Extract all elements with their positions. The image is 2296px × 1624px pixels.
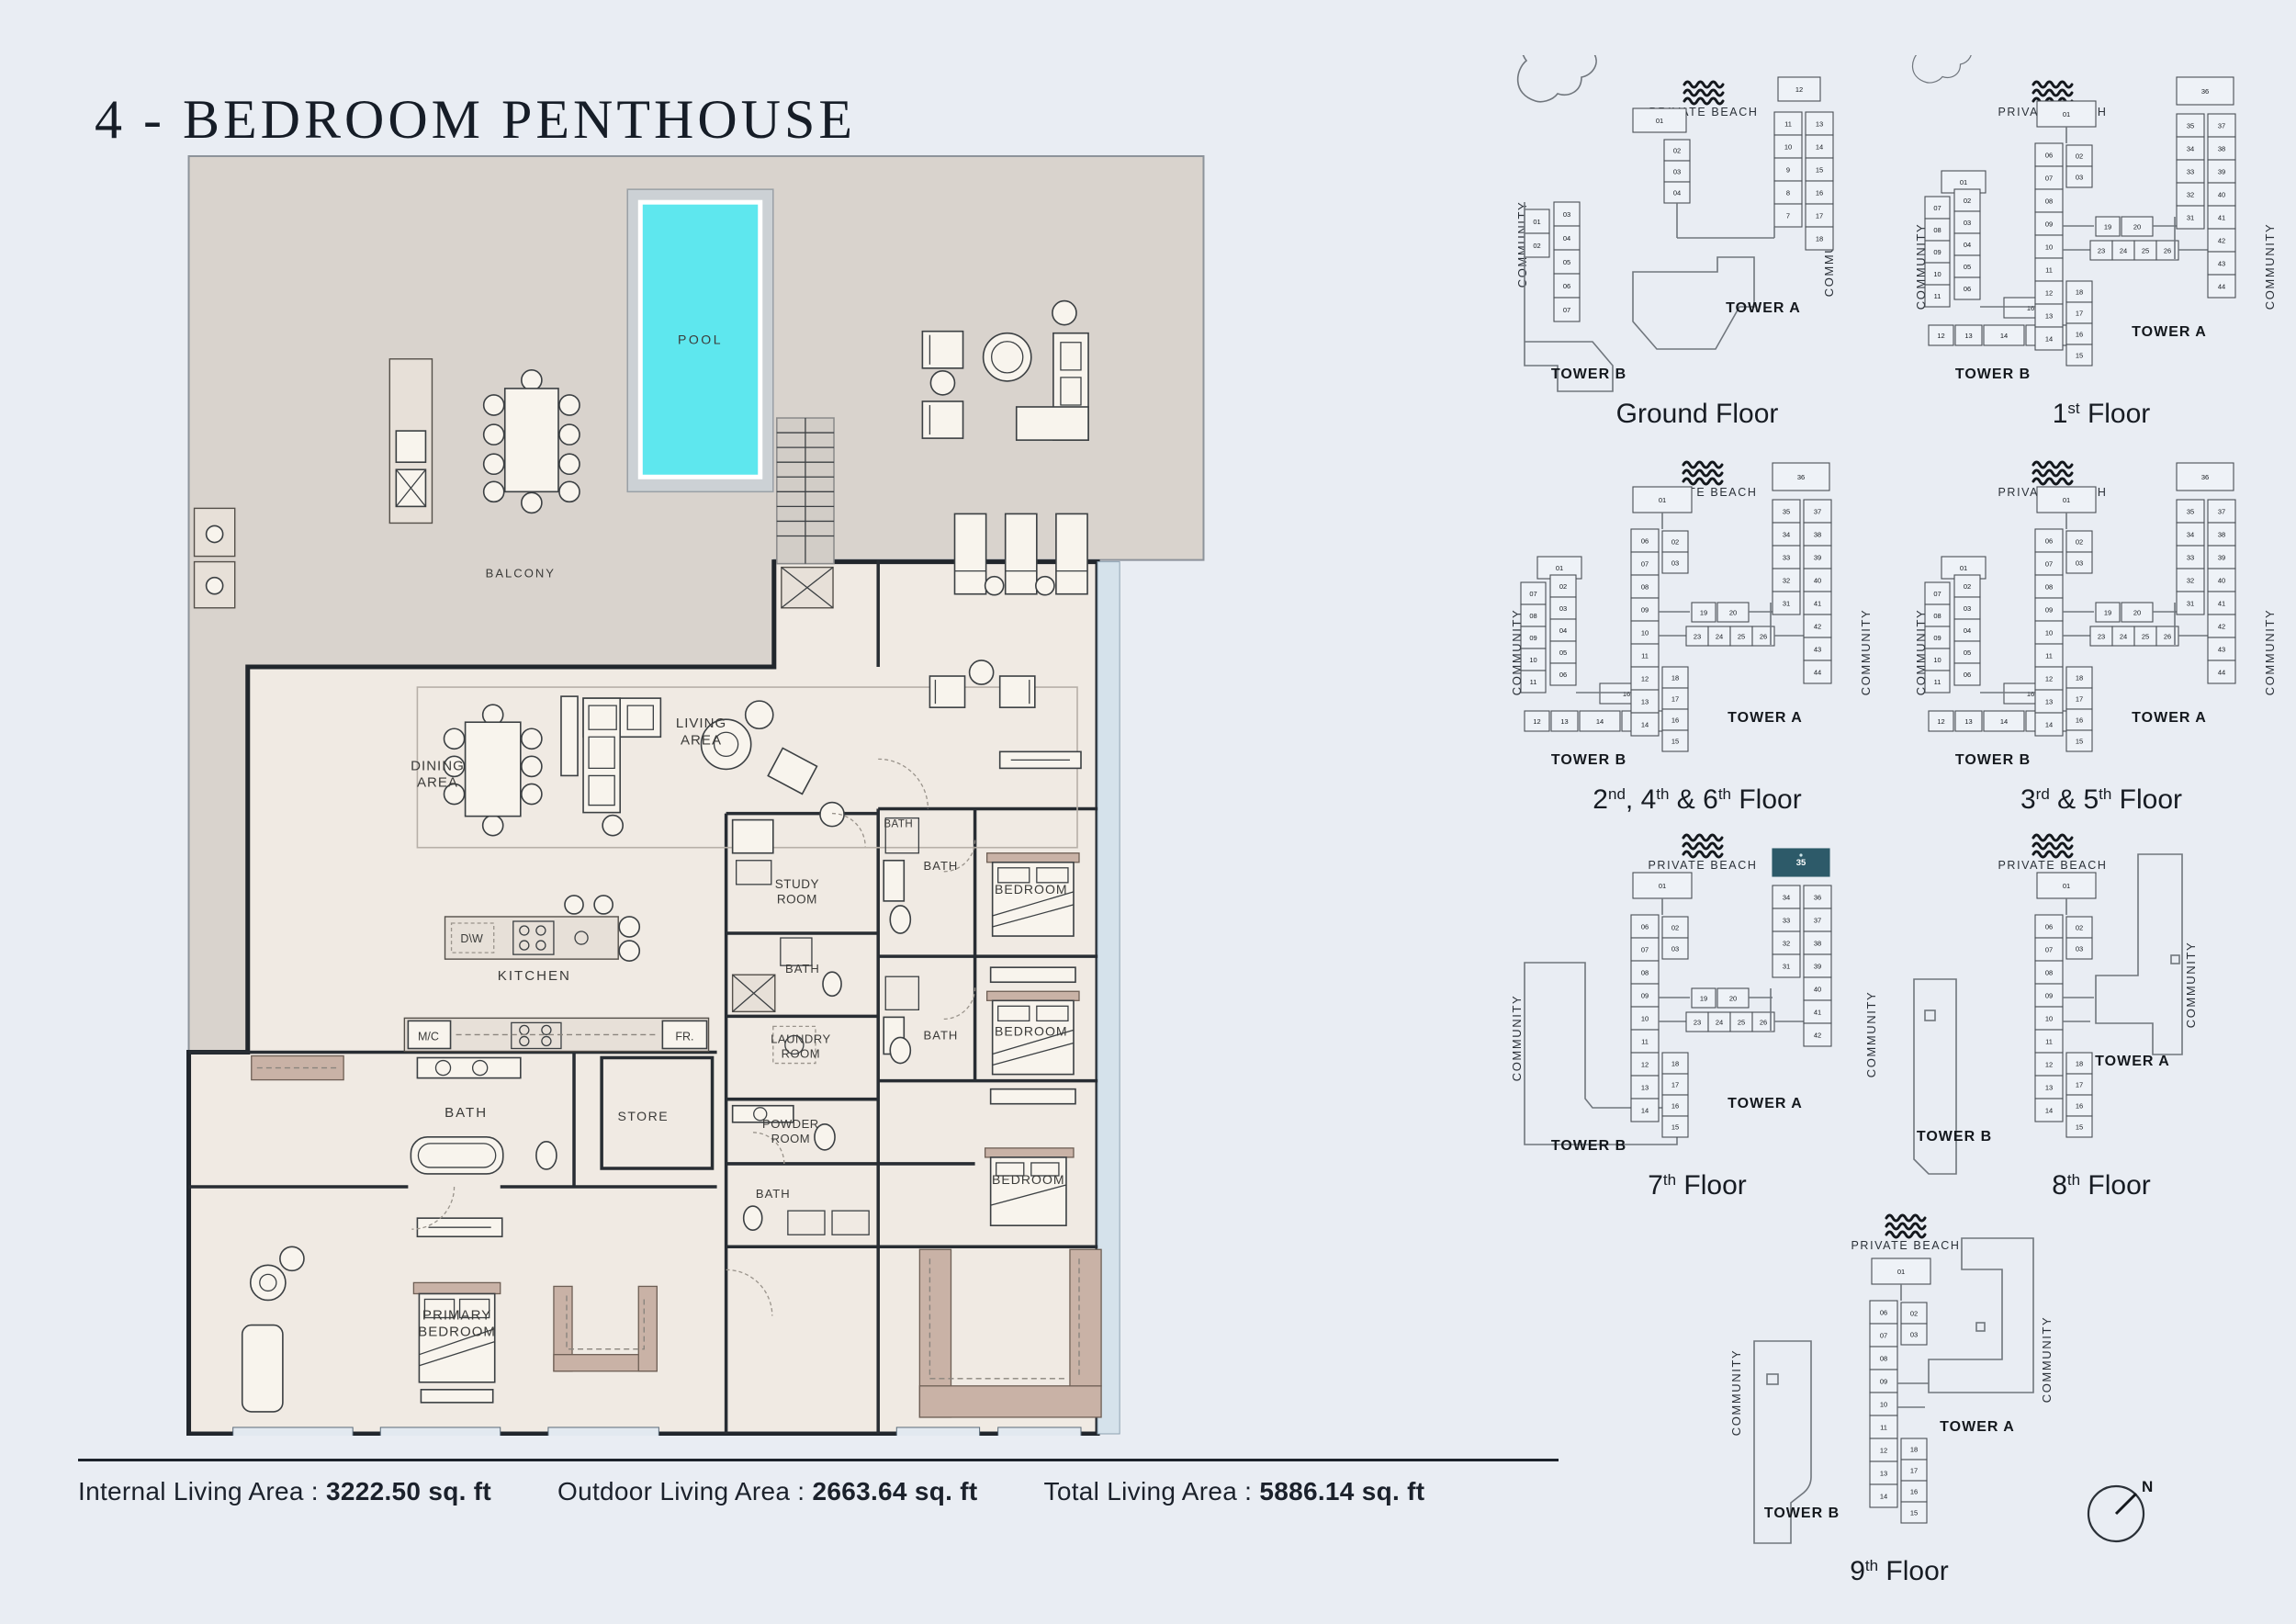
floorplan-drawing: POOLBALCONYDININGAREALIVINGAREAKITCHEND\… [186, 154, 1206, 1436]
svg-text:14: 14 [1816, 143, 1823, 152]
svg-text:10: 10 [1880, 1401, 1887, 1409]
keyplan-svg-f9: PRIVATE BEACHCOMMUNITYCOMMUNITY010607080… [1699, 1212, 2103, 1598]
svg-text:01: 01 [1659, 882, 1666, 890]
svg-text:08: 08 [1933, 226, 1941, 234]
svg-text:07: 07 [1933, 590, 1941, 598]
keyplan-1st: PRIVATE BEACHCOMMUNITYCOMMUNITY010708091… [1901, 55, 2296, 441]
svg-text:06: 06 [1559, 671, 1567, 679]
svg-text:01: 01 [1656, 117, 1663, 125]
svg-text:36: 36 [2201, 87, 2209, 96]
svg-text:25: 25 [2142, 247, 2149, 255]
svg-text:35: 35 [1796, 858, 1806, 868]
floor-caption: 2nd, 4th & 6th Floor [1593, 784, 1801, 815]
room-label-dw: D\W [460, 932, 483, 945]
room-label-store: STORE [617, 1109, 669, 1123]
svg-text:06: 06 [2045, 537, 2053, 546]
svg-text:05: 05 [1563, 258, 1570, 266]
svg-text:37: 37 [1814, 917, 1821, 925]
brochure-page: 4 - BEDROOM PENTHOUSE [0, 0, 2296, 1624]
svg-text:34: 34 [1783, 894, 1790, 902]
svg-text:38: 38 [1814, 940, 1821, 948]
svg-text:17: 17 [1671, 695, 1679, 704]
main-floorplan: POOLBALCONYDININGAREALIVINGAREAKITCHEND\… [186, 154, 1206, 1436]
svg-text:09: 09 [1880, 1378, 1887, 1386]
svg-text:02: 02 [2076, 152, 2083, 161]
keyplan-svg-first: PRIVATE BEACHCOMMUNITYCOMMUNITY010708091… [1901, 55, 2296, 441]
tower-b-label: TOWER B [1955, 367, 2031, 382]
svg-text:02: 02 [1964, 197, 1971, 205]
svg-text:07: 07 [1563, 306, 1570, 314]
svg-text:02: 02 [1671, 538, 1679, 547]
svg-text:19: 19 [2104, 223, 2111, 231]
svg-text:09: 09 [2045, 606, 2053, 615]
svg-text:16: 16 [2076, 716, 2083, 725]
room-label-bath_lower: BATH [756, 1187, 791, 1201]
keyplan-2nd-4th-6th: PRIVATE BEACHCOMMUNITYCOMMUNITY010708091… [1497, 441, 1901, 827]
svg-text:04: 04 [1964, 241, 1971, 249]
svg-text:23: 23 [2098, 633, 2105, 641]
svg-text:06: 06 [1964, 671, 1971, 679]
svg-text:03: 03 [1673, 168, 1681, 176]
svg-text:20: 20 [2133, 223, 2141, 231]
svg-text:11: 11 [1641, 1038, 1649, 1046]
svg-text:26: 26 [2164, 633, 2171, 641]
svg-text:08: 08 [2045, 583, 2053, 592]
svg-text:16: 16 [1671, 1102, 1679, 1111]
svg-text:08: 08 [2045, 197, 2053, 206]
tower-b-label: TOWER B [1917, 1129, 1992, 1145]
svg-text:06: 06 [1964, 285, 1971, 293]
svg-text:11: 11 [2045, 1038, 2053, 1046]
svg-text:13: 13 [1560, 717, 1568, 726]
community-label: COMMUNITY [2263, 223, 2277, 310]
community-label: COMMUNITY [1864, 991, 1878, 1078]
svg-text:15: 15 [2076, 1123, 2083, 1132]
svg-text:26: 26 [1760, 1019, 1767, 1027]
svg-text:08: 08 [1933, 612, 1941, 620]
keyplan-7th: PRIVATE BEACHCOMMUNITYCOMMUNITY010607080… [1497, 827, 1901, 1212]
svg-text:43: 43 [2218, 260, 2225, 268]
bbq-counter [389, 359, 432, 524]
svg-text:15: 15 [1671, 1123, 1679, 1132]
floor-caption: 8th Floor [2052, 1170, 2151, 1201]
svg-text:09: 09 [1641, 992, 1649, 1000]
svg-text:01: 01 [1556, 564, 1563, 572]
svg-text:16: 16 [1910, 1488, 1918, 1496]
svg-text:13: 13 [2045, 1084, 2053, 1092]
room-label-bath_top: BATH [884, 819, 913, 830]
svg-text:17: 17 [2076, 1081, 2083, 1089]
svg-text:07: 07 [2045, 946, 2053, 954]
svg-text:07: 07 [2045, 175, 2053, 183]
room-label-pool: POOL [678, 333, 723, 347]
svg-text:01: 01 [1659, 496, 1666, 504]
area-summary: Internal Living Area : 3222.50 sq. ftOut… [78, 1477, 1424, 1506]
tower-a-label: TOWER A [2095, 1054, 2170, 1069]
floor-caption: 3rd & 5th Floor [2020, 784, 2182, 815]
svg-text:06: 06 [1641, 537, 1649, 546]
svg-text:19: 19 [2104, 609, 2111, 617]
svg-text:12: 12 [1937, 717, 1944, 726]
svg-text:09: 09 [1933, 634, 1941, 642]
svg-text:09: 09 [1933, 248, 1941, 256]
svg-text:24: 24 [2120, 247, 2127, 255]
svg-text:33: 33 [1783, 917, 1790, 925]
svg-text:44: 44 [2218, 669, 2225, 677]
svg-text:14: 14 [1596, 717, 1604, 726]
tower-a-outline [2096, 854, 2182, 1054]
svg-text:14: 14 [2045, 335, 2053, 344]
svg-text:35: 35 [2187, 508, 2194, 516]
svg-text:10: 10 [2045, 243, 2053, 252]
svg-text:02: 02 [1671, 924, 1679, 932]
community-label: COMMUNITY [2040, 1316, 2054, 1404]
svg-text:43: 43 [2218, 646, 2225, 654]
svg-text:02: 02 [2076, 924, 2083, 932]
svg-text:23: 23 [1694, 1019, 1701, 1027]
svg-text:18: 18 [2076, 674, 2083, 682]
room-label-primary: PRIMARYBEDROOM [418, 1308, 496, 1340]
svg-text:18: 18 [1671, 674, 1679, 682]
svg-text:01: 01 [2063, 496, 2070, 504]
svg-text:44: 44 [2218, 283, 2225, 291]
keyplan-svg-f7: PRIVATE BEACHCOMMUNITYCOMMUNITY010607080… [1497, 827, 1901, 1212]
svg-text:14: 14 [1880, 1493, 1887, 1501]
svg-text:04: 04 [1964, 626, 1971, 635]
svg-text:03: 03 [1559, 604, 1567, 613]
svg-text:02: 02 [1910, 1310, 1918, 1318]
community-label: COMMUNITY [1729, 1349, 1743, 1437]
svg-text:02: 02 [1673, 147, 1681, 155]
svg-text:12: 12 [1533, 717, 1540, 726]
sun-loungers [955, 513, 1088, 594]
svg-text:20: 20 [2133, 609, 2141, 617]
svg-text:07: 07 [1641, 560, 1649, 569]
svg-text:39: 39 [2218, 168, 2225, 176]
room-label-kitchen: KITCHEN [498, 968, 571, 984]
svg-text:06: 06 [1880, 1309, 1887, 1317]
svg-text:12: 12 [1641, 675, 1649, 683]
floor-caption: 1st Floor [2053, 399, 2151, 429]
svg-text:07: 07 [1933, 204, 1941, 212]
tower-a-label: TOWER A [1728, 710, 1803, 726]
svg-text:10: 10 [1933, 270, 1941, 278]
svg-text:39: 39 [1814, 554, 1821, 562]
svg-text:14: 14 [2000, 717, 2008, 726]
svg-text:7: 7 [1786, 212, 1790, 220]
svg-text:25: 25 [1738, 1019, 1745, 1027]
svg-text:02: 02 [1964, 582, 1971, 591]
svg-text:38: 38 [2218, 531, 2225, 539]
svg-text:41: 41 [2218, 600, 2225, 608]
svg-text:01: 01 [2063, 110, 2070, 118]
private-beach-label: PRIVATE BEACH [1649, 859, 1758, 872]
room-label-dining: DININGAREA [411, 758, 465, 790]
svg-text:40: 40 [1814, 577, 1821, 585]
svg-text:09: 09 [2045, 220, 2053, 229]
svg-text:32: 32 [1783, 577, 1790, 585]
svg-text:25: 25 [2142, 633, 2149, 641]
svg-text:40: 40 [2218, 577, 2225, 585]
tower-b-label: TOWER B [1764, 1506, 1840, 1521]
svg-text:10: 10 [1933, 656, 1941, 664]
svg-text:15: 15 [1671, 738, 1679, 746]
room-label-balcony: BALCONY [486, 567, 556, 581]
svg-text:12: 12 [2045, 289, 2053, 298]
svg-text:13: 13 [1964, 717, 1972, 726]
north-compass: N [2074, 1468, 2166, 1560]
svg-text:42: 42 [1814, 1032, 1821, 1040]
svg-text:11: 11 [1530, 678, 1537, 686]
svg-text:42: 42 [1814, 623, 1821, 631]
svg-text:05: 05 [1964, 263, 1971, 271]
svg-text:42: 42 [2218, 237, 2225, 245]
svg-text:12: 12 [2045, 675, 2053, 683]
svg-text:15: 15 [1910, 1509, 1918, 1517]
svg-text:13: 13 [1641, 698, 1649, 706]
floor-caption: 9th Floor [1850, 1556, 1949, 1586]
room-label-fr: FR. [675, 1030, 693, 1043]
lagoon-outline [1518, 55, 1598, 102]
svg-text:18: 18 [1910, 1446, 1918, 1454]
svg-text:23: 23 [2098, 247, 2105, 255]
community-label: COMMUNITY [2184, 942, 2198, 1029]
svg-text:25: 25 [1738, 633, 1745, 641]
svg-text:03: 03 [1671, 559, 1679, 568]
keyplan-svg-f35: PRIVATE BEACHCOMMUNITYCOMMUNITY010708091… [1901, 441, 2296, 827]
svg-text:06: 06 [1641, 923, 1649, 931]
tower-b-label: TOWER B [1551, 367, 1626, 382]
svg-text:03: 03 [1964, 604, 1971, 613]
svg-text:23: 23 [1694, 633, 1701, 641]
svg-text:15: 15 [2076, 738, 2083, 746]
svg-text:12: 12 [1795, 85, 1803, 94]
svg-text:04: 04 [1673, 189, 1681, 197]
svg-text:34: 34 [2187, 145, 2194, 153]
svg-text:17: 17 [1910, 1467, 1918, 1475]
svg-text:11: 11 [1934, 292, 1941, 300]
floor-caption: Ground Floor [1616, 399, 1779, 429]
svg-text:14: 14 [1641, 1107, 1649, 1115]
svg-text:35: 35 [1783, 508, 1790, 516]
svg-text:20: 20 [1729, 995, 1737, 1003]
svg-text:01: 01 [1897, 1268, 1905, 1276]
svg-text:11: 11 [2045, 266, 2053, 275]
svg-text:15: 15 [1816, 166, 1823, 175]
keyplan-8th: PRIVATE BEACHCOMMUNITY010607080910111213… [1901, 827, 2296, 1212]
svg-text:35: 35 [2187, 122, 2194, 130]
svg-text:44: 44 [1814, 669, 1821, 677]
stairs-icon [777, 418, 834, 564]
svg-text:12: 12 [2045, 1061, 2053, 1069]
svg-text:14: 14 [2045, 1107, 2053, 1115]
room-label-living: LIVINGAREA [676, 716, 726, 748]
keyplan-ground: PRIVATE BEACHCOMMUNITYCOMMUNITY010203040… [1497, 55, 1901, 441]
kitchen-counter [404, 1018, 708, 1051]
svg-text:33: 33 [1783, 554, 1790, 562]
svg-text:04: 04 [1563, 234, 1570, 242]
svg-text:17: 17 [1816, 212, 1823, 220]
svg-text:26: 26 [2164, 247, 2171, 255]
svg-text:36: 36 [1814, 894, 1821, 902]
tower-a-label: TOWER A [1728, 1096, 1803, 1111]
svg-text:01: 01 [1960, 178, 1967, 186]
svg-text:03: 03 [1563, 210, 1570, 219]
svg-text:31: 31 [2187, 600, 2194, 608]
svg-text:31: 31 [1783, 600, 1790, 608]
tower-a-label: TOWER A [1940, 1419, 2015, 1435]
svg-text:12: 12 [1937, 332, 1944, 340]
compass-needle [2116, 1494, 2136, 1514]
room-label-bath_en2: BATH [924, 1028, 959, 1042]
community-label: COMMUNITY [2263, 609, 2277, 696]
svg-text:01: 01 [1960, 564, 1967, 572]
svg-text:04: 04 [1559, 626, 1567, 635]
area-stat-0: Internal Living Area : 3222.50 sq. ft [78, 1477, 491, 1506]
area-stat-2: Total Living Area : 5886.14 sq. ft [1044, 1477, 1425, 1506]
svg-text:40: 40 [2218, 191, 2225, 199]
svg-text:16: 16 [2076, 1102, 2083, 1111]
svg-text:33: 33 [2187, 168, 2194, 176]
room-label-bedroom_3: BEDROOM [992, 1172, 1065, 1187]
tower-a-label: TOWER A [2132, 710, 2207, 726]
svg-text:11: 11 [1641, 652, 1649, 660]
keyplan-svg-f8: PRIVATE BEACHCOMMUNITY010607080910111213… [1901, 827, 2296, 1212]
svg-text:03: 03 [1910, 1331, 1918, 1339]
svg-text:13: 13 [1816, 120, 1823, 129]
tower-b-label: TOWER B [1955, 752, 2031, 768]
svg-text:17: 17 [2076, 310, 2083, 318]
svg-text:16: 16 [1671, 716, 1679, 725]
svg-text:18: 18 [2076, 288, 2083, 297]
svg-text:18: 18 [1816, 235, 1823, 243]
svg-text:08: 08 [1529, 612, 1536, 620]
svg-text:31: 31 [2187, 214, 2194, 222]
svg-text:10: 10 [1641, 629, 1649, 637]
svg-text:03: 03 [2076, 945, 2083, 953]
svg-text:14: 14 [2045, 721, 2053, 729]
svg-text:8: 8 [1786, 189, 1790, 197]
service-shaft [733, 975, 775, 1011]
svg-text:14: 14 [2000, 332, 2008, 340]
lagoon-outline [1912, 55, 1972, 83]
svg-text:12: 12 [1641, 1061, 1649, 1069]
svg-text:08: 08 [2045, 969, 2053, 977]
compass-north-label: N [2142, 1478, 2153, 1495]
svg-text:18: 18 [2076, 1060, 2083, 1068]
svg-text:32: 32 [2187, 191, 2194, 199]
svg-text:38: 38 [1814, 531, 1821, 539]
svg-text:01: 01 [1533, 218, 1540, 226]
svg-text:08: 08 [1641, 969, 1649, 977]
room-label-bath_main: BATH [445, 1105, 488, 1121]
keyplan-svg-f246: PRIVATE BEACHCOMMUNITYCOMMUNITY010708091… [1497, 441, 1901, 827]
svg-text:41: 41 [1814, 600, 1821, 608]
svg-text:10: 10 [2045, 1015, 2053, 1023]
svg-text:09: 09 [1641, 606, 1649, 615]
svg-text:15: 15 [2076, 352, 2083, 360]
svg-text:37: 37 [1814, 508, 1821, 516]
svg-text:37: 37 [2218, 508, 2225, 516]
svg-text:37: 37 [2218, 122, 2225, 130]
room-label-bath_study: BATH [785, 962, 820, 976]
room-label-bedroom_1: BEDROOM [995, 882, 1068, 897]
svg-text:06: 06 [2045, 152, 2053, 160]
tower-a-outline [1929, 1238, 2033, 1393]
svg-text:01: 01 [2063, 882, 2070, 890]
svg-text:16: 16 [2027, 690, 2034, 698]
footer-divider [78, 1459, 1559, 1461]
svg-text:13: 13 [1641, 1084, 1649, 1092]
svg-text:20: 20 [1729, 609, 1737, 617]
svg-text:02: 02 [2076, 538, 2083, 547]
room-label-bath_en1: BATH [924, 859, 959, 873]
area-stat-1: Outdoor Living Area : 2663.64 sq. ft [557, 1477, 978, 1506]
svg-text:16: 16 [1623, 690, 1630, 698]
keyplan-3rd-5th: PRIVATE BEACHCOMMUNITYCOMMUNITY010708091… [1901, 441, 2296, 827]
svg-text:24: 24 [1716, 1019, 1723, 1027]
svg-text:03: 03 [1964, 219, 1971, 227]
private-beach-label: PRIVATE BEACH [1998, 859, 2108, 872]
svg-text:06: 06 [1563, 282, 1570, 290]
svg-text:13: 13 [2045, 698, 2053, 706]
svg-text:32: 32 [2187, 577, 2194, 585]
private-beach-label: PRIVATE BEACH [1851, 1239, 1961, 1252]
svg-text:41: 41 [2218, 214, 2225, 222]
svg-text:03: 03 [2076, 559, 2083, 568]
tower-b-label: TOWER B [1551, 752, 1626, 768]
tower-b-label: TOWER B [1551, 1138, 1626, 1154]
svg-text:24: 24 [2120, 633, 2127, 641]
svg-text:06: 06 [2045, 923, 2053, 931]
svg-text:02: 02 [1533, 242, 1540, 250]
svg-text:33: 33 [2187, 554, 2194, 562]
svg-text:10: 10 [1529, 656, 1536, 664]
keyplan-9th: PRIVATE BEACHCOMMUNITYCOMMUNITY010607080… [1699, 1212, 2103, 1598]
room-label-mc: M/C [418, 1030, 439, 1043]
svg-text:16: 16 [2076, 331, 2083, 339]
svg-text:13: 13 [1880, 1470, 1887, 1478]
svg-text:13: 13 [1964, 332, 1972, 340]
svg-text:31: 31 [1783, 963, 1790, 971]
svg-text:19: 19 [1700, 995, 1707, 1003]
svg-text:11: 11 [2045, 652, 2053, 660]
svg-text:12: 12 [1880, 1447, 1887, 1455]
svg-text:26: 26 [1760, 633, 1767, 641]
svg-text:34: 34 [2187, 531, 2194, 539]
svg-text:07: 07 [1529, 590, 1536, 598]
svg-text:39: 39 [2218, 554, 2225, 562]
svg-text:09: 09 [1529, 634, 1536, 642]
svg-text:10: 10 [1784, 143, 1792, 152]
community-label: COMMUNITY [1510, 995, 1524, 1082]
svg-text:08: 08 [1641, 583, 1649, 592]
tower-a-label: TOWER A [2132, 324, 2207, 340]
floor-caption: 7th Floor [1648, 1170, 1747, 1201]
svg-text:07: 07 [2045, 560, 2053, 569]
svg-text:42: 42 [2218, 623, 2225, 631]
svg-text:17: 17 [2076, 695, 2083, 704]
page-title: 4 - BEDROOM PENTHOUSE [95, 88, 856, 152]
community-label: COMMUNITY [1859, 609, 1873, 696]
svg-text:18: 18 [1671, 1060, 1679, 1068]
svg-text:24: 24 [1716, 633, 1723, 641]
svg-text:14: 14 [1641, 721, 1649, 729]
elevator-shaft [782, 568, 833, 608]
svg-text:05: 05 [1964, 648, 1971, 657]
svg-text:09: 09 [2045, 992, 2053, 1000]
svg-text:40: 40 [1814, 986, 1821, 994]
